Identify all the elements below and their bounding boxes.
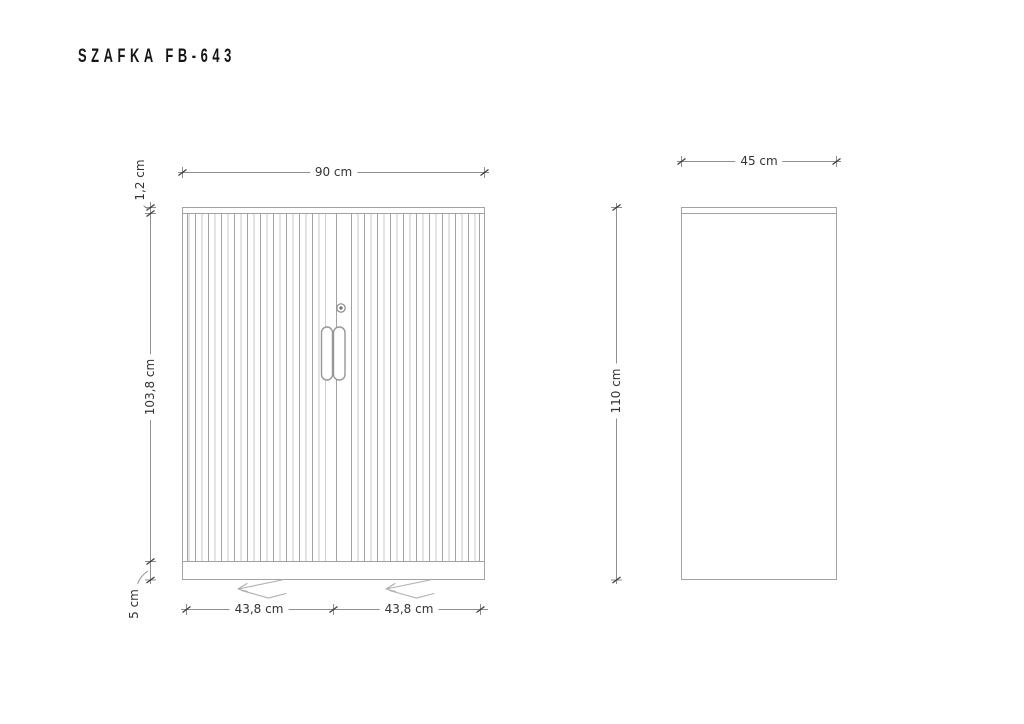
slide-arrow <box>386 580 434 598</box>
dim-label-door-height: 103,8 cm <box>142 354 158 420</box>
lock-keyhole-dot <box>339 306 342 309</box>
drawing-canvas: SZAFKA FB-643 90 cm 1,2 cm 103,8 cm 5 cm… <box>0 0 1024 724</box>
dim-label-left-door-width: 43,8 cm <box>230 601 289 617</box>
side-cabinet-outline <box>682 208 837 580</box>
dim-label-front-width: 90 cm <box>310 164 357 180</box>
slide-arrow <box>238 580 286 598</box>
handle-left <box>322 327 333 380</box>
dim-label-right-door-width: 43,8 cm <box>380 601 439 617</box>
dim-label-side-depth: 45 cm <box>735 153 782 169</box>
slide-direction-symbol-left <box>238 580 286 598</box>
side-view <box>682 208 837 580</box>
front-view <box>183 208 485 580</box>
lock-icon <box>337 304 345 312</box>
slide-direction-symbol-right <box>386 580 434 598</box>
dim-label-plinth-height: 5 cm <box>126 584 142 624</box>
dim-label-side-height: 110 cm <box>608 363 624 418</box>
dim-door-widths <box>181 604 488 615</box>
page-title: SZAFKA FB-643 <box>78 45 236 67</box>
dim-label-top-panel-height: 1,2 cm <box>132 154 148 205</box>
handle-right <box>334 327 346 380</box>
